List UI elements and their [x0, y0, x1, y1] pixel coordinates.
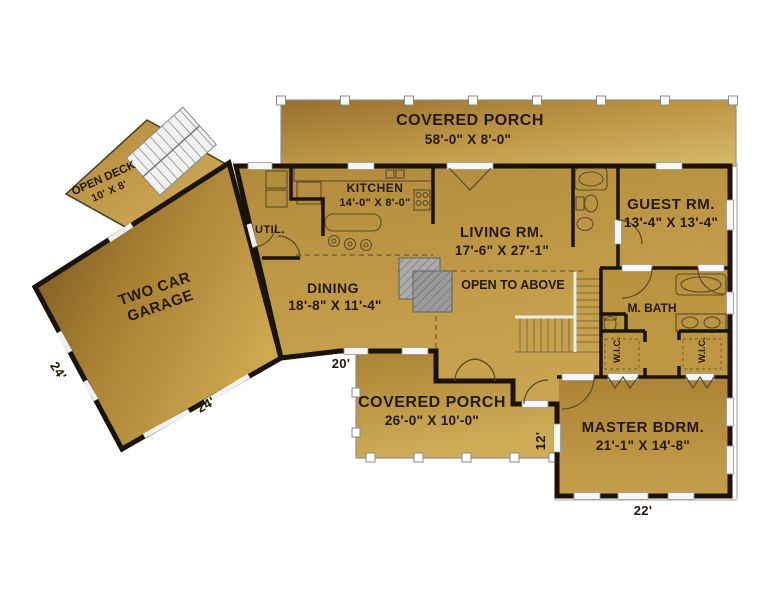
dim-master-22: 22'	[634, 503, 652, 518]
dim-porch-12: 12'	[533, 432, 548, 450]
label-kitchen-dims: 14'-0" X 8'-0"	[339, 197, 410, 209]
label-dining-dims: 18'-8" X 11'-4"	[288, 298, 382, 313]
label-wic-right: W.I.C.	[697, 337, 708, 363]
porch-double-door-opening	[447, 163, 493, 170]
label-util: UTIL.	[255, 224, 285, 236]
floor-plan-canvas: COVERED PORCH 58'-0" X 8'-0" KITCHEN 14'…	[0, 0, 760, 600]
label-living: LIVING RM.	[460, 225, 544, 241]
label-living-dims: 17'-6" X 27'-1"	[455, 243, 549, 258]
guest-door-opening	[615, 220, 622, 244]
label-master: MASTER BDRM.	[582, 419, 705, 436]
floor-plan-page: COVERED PORCH 58'-0" X 8'-0" KITCHEN 14'…	[0, 0, 760, 600]
label-top-porch-dims: 58'-0" X 8'-0"	[425, 132, 511, 147]
label-master-dims: 21'-1" X 14'-8"	[596, 438, 690, 453]
label-wic-left: W.I.C.	[612, 337, 623, 363]
master-door-opening	[562, 374, 594, 381]
porch-hall-door-opening	[522, 401, 548, 408]
master-floor-tint	[559, 378, 728, 494]
dim-entry-20: 20'	[332, 356, 350, 371]
dim-garage-left-24: 24'	[47, 359, 70, 383]
label-open-to-above: OPEN TO ABOVE	[461, 278, 565, 292]
label-bottom-porch-dims: 26'-0" X 10'-0"	[385, 413, 479, 428]
label-guest: GUEST RM.	[627, 196, 715, 213]
label-kitchen: KITCHEN	[347, 181, 404, 195]
label-top-porch: COVERED PORCH	[396, 112, 544, 129]
label-mbath: M. BATH	[627, 301, 676, 315]
label-bottom-porch: COVERED PORCH	[358, 394, 506, 411]
label-guest-dims: 13'-4" X 13'-4"	[624, 215, 718, 230]
label-dining: DINING	[307, 280, 359, 296]
